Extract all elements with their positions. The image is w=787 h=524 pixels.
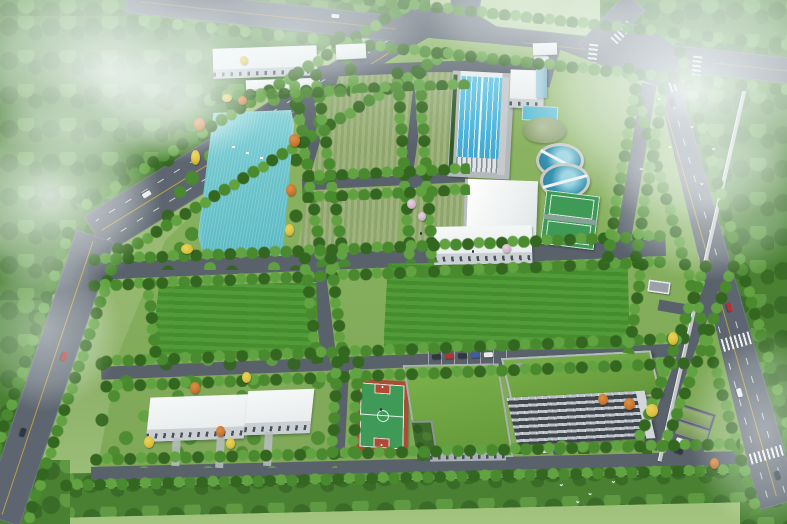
parked-car xyxy=(445,353,454,358)
autumn-tree xyxy=(190,382,200,394)
car xyxy=(61,352,68,362)
hoop xyxy=(381,386,383,388)
bird-icon: ˇ xyxy=(712,150,715,154)
autumn-tree xyxy=(289,134,300,147)
bird-icon: ˇ xyxy=(640,170,643,174)
autumn-tree xyxy=(238,96,247,105)
car xyxy=(775,470,782,480)
car xyxy=(331,14,339,19)
southwest-building-2-facade xyxy=(244,421,311,435)
autumn-tree xyxy=(216,426,225,437)
lawn-west xyxy=(152,282,318,356)
scraper-bridge xyxy=(543,174,588,188)
person-figure xyxy=(380,408,382,411)
bird-icon: ˇ xyxy=(576,503,579,507)
car xyxy=(726,302,733,312)
car xyxy=(20,428,27,438)
car xyxy=(670,97,677,107)
person-figure xyxy=(472,250,474,253)
center-circle xyxy=(377,410,389,423)
autumn-tree xyxy=(668,332,678,345)
gatehouse-north-east xyxy=(533,43,557,56)
autumn-tree xyxy=(285,224,294,236)
parked-car xyxy=(432,354,441,359)
water-bird xyxy=(232,146,235,148)
autumn-tree xyxy=(710,458,719,469)
autumn-tree xyxy=(624,398,635,410)
digester-dome xyxy=(522,117,566,143)
bird-icon: ˇ xyxy=(588,495,592,499)
autumn-tree xyxy=(646,404,658,417)
southwest-building-1 xyxy=(146,394,249,442)
blossom-tree xyxy=(502,244,511,253)
bird-icon: ˇ xyxy=(612,483,615,487)
autumn-tree xyxy=(181,244,193,254)
autumn-tree xyxy=(194,118,205,131)
parked-car xyxy=(471,353,480,358)
southwest-building-2 xyxy=(244,389,315,435)
water-bird xyxy=(246,152,249,154)
gatehouse-north-west xyxy=(336,43,367,60)
parked-car xyxy=(458,353,467,358)
blossom-tree xyxy=(407,199,416,209)
autumn-tree xyxy=(240,56,248,65)
autumn-tree xyxy=(191,150,200,165)
aerial-rendering-scene: ˇ ˇ ˇ ˇ ˇ ˇ ˇ ˇ ˇ ˇ xyxy=(0,0,787,524)
blossom-tree xyxy=(418,212,426,221)
court-surface xyxy=(359,382,404,449)
autumn-tree xyxy=(222,94,232,102)
parked-car xyxy=(484,352,493,357)
autumn-tree xyxy=(226,438,235,449)
bird-icon: ˇ xyxy=(560,486,563,490)
autumn-tree xyxy=(598,394,608,405)
autumn-tree xyxy=(242,372,251,383)
person-figure xyxy=(420,232,422,235)
autumn-tree xyxy=(286,184,296,196)
bird-icon: ˇ xyxy=(700,185,703,189)
bird-icon: ˇ xyxy=(690,128,693,132)
autumn-tree xyxy=(144,436,154,448)
bird-icon: ˇ xyxy=(658,100,662,104)
